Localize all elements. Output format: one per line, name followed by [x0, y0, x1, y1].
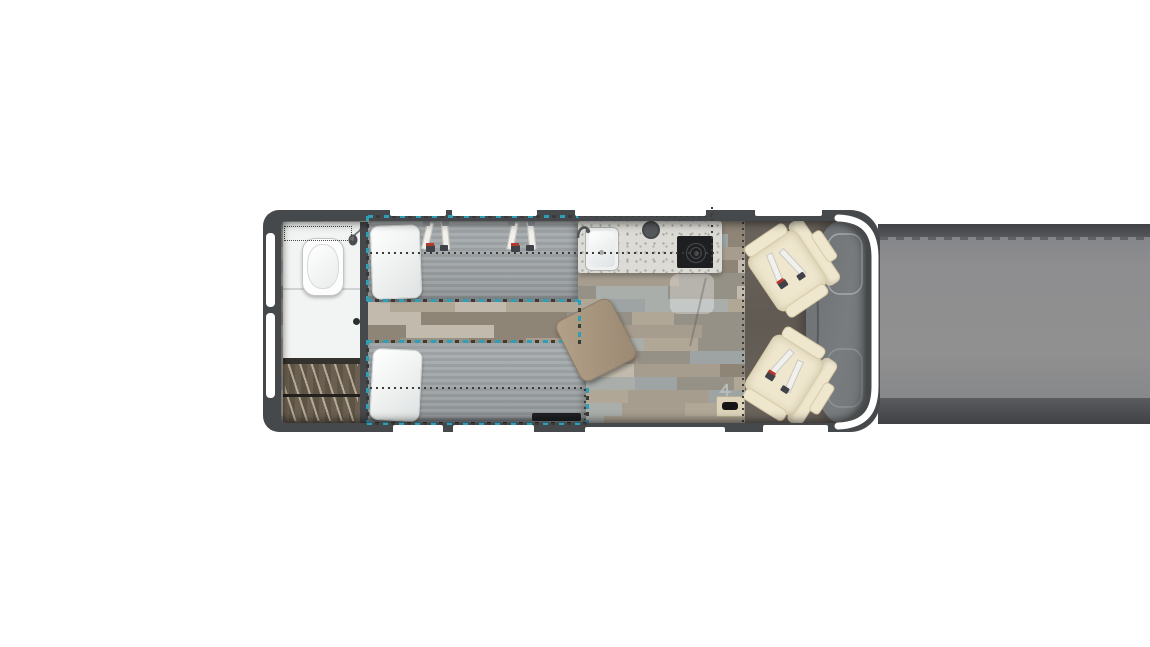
floorplan-image	[0, 0, 1150, 647]
truncation-band	[878, 237, 1150, 398]
window-top-2	[452, 203, 537, 216]
window-bottom-1	[393, 425, 443, 437]
sliding-door-window	[585, 427, 725, 435]
window-top-1	[390, 203, 446, 216]
window-top-4	[755, 205, 822, 216]
window-bottom-4	[763, 425, 828, 436]
rear-window-2	[266, 313, 275, 398]
window-top-3	[575, 205, 706, 216]
truncation-band-dashes	[880, 237, 1150, 240]
truncation-band-bottom-edge	[878, 398, 1150, 424]
rear-window-1	[266, 233, 275, 307]
truncation-band-top-edge	[878, 224, 1150, 237]
windshield-band	[263, 210, 880, 432]
window-bottom-2	[453, 425, 534, 437]
